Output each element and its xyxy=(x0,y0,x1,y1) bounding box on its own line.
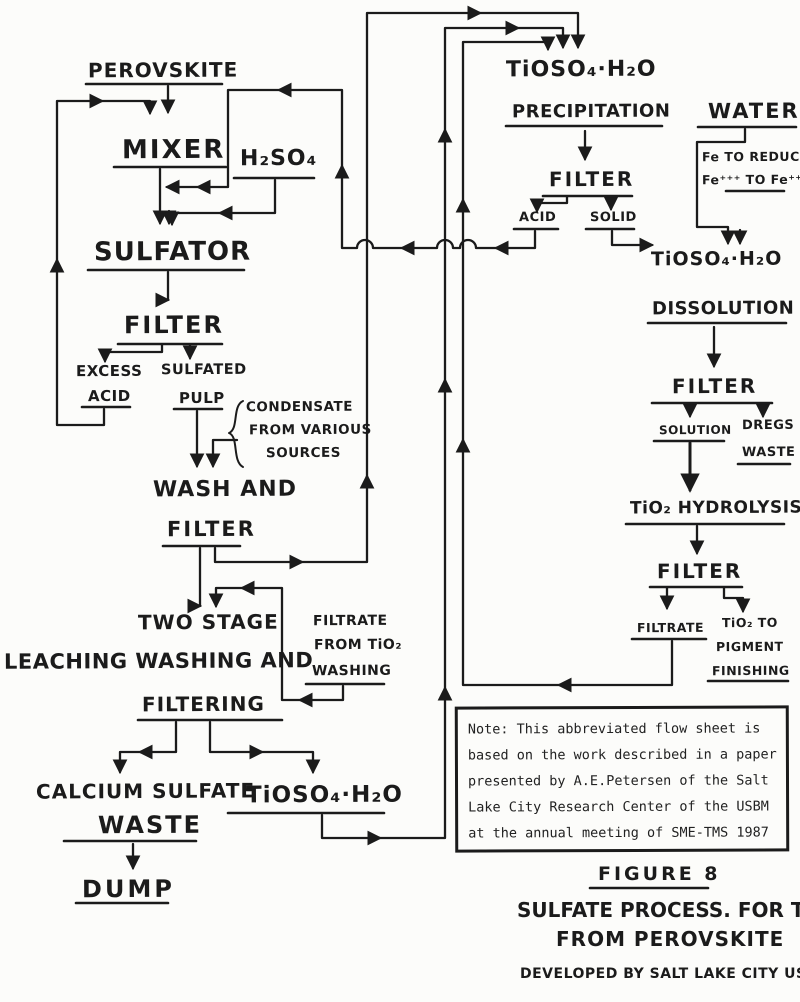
label-filtrate-wash-1: FILTRATE xyxy=(313,614,388,630)
flowsheet-canvas: PEROVSKITE MIXER H₂SO₄ SULFATOR FILTER E… xyxy=(0,0,800,1002)
label-filtrate-wash-2: FROM TiO₂ xyxy=(314,638,402,654)
note-line: based on the work described in a paper xyxy=(468,741,778,768)
label-condensate-1: CONDENSATE xyxy=(246,400,353,416)
label-pigment-1: TiO₂ TO xyxy=(722,616,778,630)
note-box: Note: This abbreviated flow sheet is bas… xyxy=(455,705,790,852)
label-wash-2: FILTER xyxy=(167,518,256,542)
label-wash-1: WASH AND xyxy=(153,478,297,503)
label-two-stage-3: FILTERING xyxy=(142,693,265,716)
label-filtrate-wash-3: WASHING xyxy=(312,664,391,680)
label-two-stage-1: TWO STAGE xyxy=(138,611,279,634)
label-fe-note-2: Fe⁺⁺⁺ TO Fe⁺⁺ xyxy=(702,173,800,188)
edge-twostage-tioso4 xyxy=(210,722,313,772)
edge-solid-dissolution xyxy=(612,231,652,245)
note-line: presented by A.E.Petersen of the Salt xyxy=(468,767,778,794)
label-h2so4: H₂SO₄ xyxy=(240,147,317,172)
label-excess-acid: ACID xyxy=(88,388,131,405)
figure-label: FIGURE 8 xyxy=(598,863,721,885)
label-mixer: MIXER xyxy=(122,136,226,166)
label-dregs-2: WASTE xyxy=(742,446,796,461)
label-sulfator: SULFATOR xyxy=(94,238,251,268)
note-line: Note: This abbreviated flow sheet is xyxy=(468,715,778,742)
label-pigment-2: PIGMENT xyxy=(716,640,784,654)
label-fe-note-1: Fe TO REDUCE xyxy=(702,150,800,165)
label-sulfated: SULFATED xyxy=(161,362,247,379)
condensate-brace xyxy=(229,401,243,467)
label-condensate-2: FROM VARIOUS xyxy=(249,423,372,439)
label-hydrolysis: TiO₂ HYDROLYSIS xyxy=(630,499,800,519)
label-tioso4-precip-1: TiOSO₄·H₂O xyxy=(506,58,657,83)
label-water: WATER xyxy=(708,100,800,124)
label-tioso4-diss-1: TiOSO₄·H₂O xyxy=(651,249,783,271)
label-pulp: PULP xyxy=(179,390,225,407)
edge-acid-return xyxy=(167,90,535,248)
label-filtrate-hyd: FILTRATE xyxy=(637,621,704,635)
label-two-stage-2: LEACHING WASHING AND xyxy=(4,649,313,674)
label-condensate-3: SOURCES xyxy=(266,446,341,462)
note-line: at the annual meeting of SME-TMS 1987 xyxy=(468,819,778,846)
figure-credit: DEVELOPED BY SALT LAKE CITY USBM xyxy=(520,966,800,982)
label-filter-hydrolysis: FILTER xyxy=(657,560,742,583)
label-pigment-3: FINISHING xyxy=(712,664,790,678)
note-line: Lake City Research Center of the USBM xyxy=(468,793,778,820)
label-calcium-2: WASTE xyxy=(98,812,202,839)
label-filter-diss: FILTER xyxy=(672,375,757,398)
label-filter-precip: FILTER xyxy=(549,168,634,191)
edge-filtrate-hyd-return xyxy=(463,42,672,685)
label-dump: DUMP xyxy=(82,876,175,903)
figure-title-line2: FROM PEROVSKITE xyxy=(556,927,784,951)
label-excess: EXCESS xyxy=(76,363,143,380)
label-solution: SOLUTION xyxy=(659,424,732,438)
label-tioso4-precip-2: PRECIPITATION xyxy=(512,102,671,123)
label-acid-precip: ACID xyxy=(519,211,556,226)
edge-condensate-wash xyxy=(213,440,237,466)
label-filter-sulfator: FILTER xyxy=(124,312,224,339)
edge-twostage-calcium xyxy=(120,722,176,772)
label-perovskite: PEROVSKITE xyxy=(88,59,238,82)
label-calcium-1: CALCIUM SULFATE xyxy=(36,779,255,803)
label-tioso4-leach: TiOSO₄·H₂O xyxy=(246,783,403,810)
label-tioso4-diss-2: DISSOLUTION xyxy=(652,299,794,320)
edge-filter4-pigment xyxy=(724,588,743,611)
label-dregs-1: DREGS xyxy=(742,419,794,434)
label-solid: SOLID xyxy=(590,211,637,226)
edge-filter2-acid xyxy=(537,197,567,211)
edge-filter-excess xyxy=(105,345,162,361)
figure-title-line1: SULFATE PROCESS. FOR TiO₂ xyxy=(517,898,800,922)
